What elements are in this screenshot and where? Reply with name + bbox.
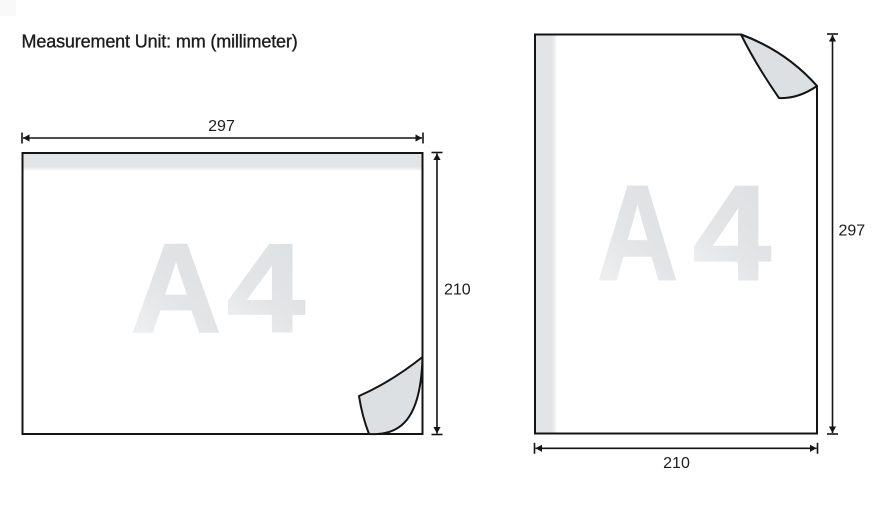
svg-text:297: 297 xyxy=(208,118,235,135)
svg-text:297: 297 xyxy=(839,223,866,240)
svg-text:A: A xyxy=(131,218,221,359)
svg-text:A: A xyxy=(597,158,678,309)
svg-text:210: 210 xyxy=(663,455,690,472)
svg-text:4: 4 xyxy=(227,218,305,359)
svg-text:4: 4 xyxy=(693,158,771,309)
svg-text:Measurement Unit: mm (millimet: Measurement Unit: mm (millimeter) xyxy=(22,32,298,52)
svg-text:210: 210 xyxy=(444,282,471,299)
